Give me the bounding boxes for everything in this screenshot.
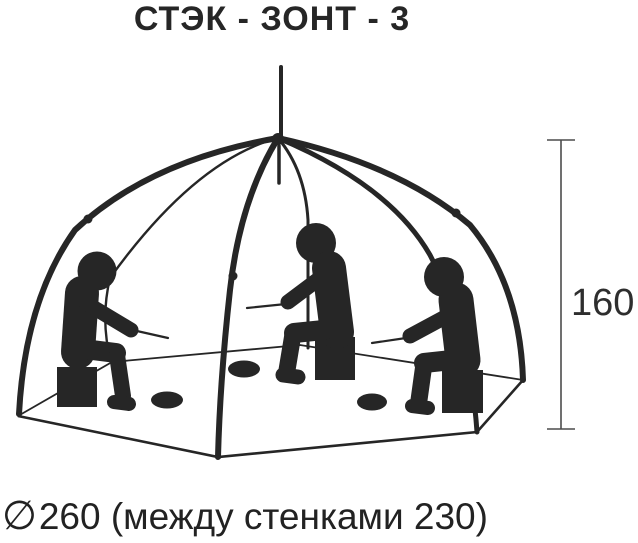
- seat-box-left: [57, 367, 97, 407]
- rib-joints: [84, 133, 461, 281]
- rib-joint-left: [84, 215, 93, 224]
- diagram-page: { "title": "СТЭК - ЗОНТ - 3", "diagram":…: [0, 0, 638, 543]
- diameter-caption-text: 260 (между стенками 230): [39, 496, 488, 537]
- tent-hub: [272, 133, 284, 145]
- tent-drawing: [0, 0, 638, 543]
- diameter-symbol: ∅: [2, 494, 37, 538]
- angler-right-shin: [419, 364, 424, 400]
- fishing-rod-middle: [247, 304, 286, 308]
- angler-right-torso: [456, 300, 463, 360]
- angler-left-shin: [117, 355, 123, 396]
- height-dimension-label: 160: [571, 282, 634, 325]
- angler-left-foot: [114, 402, 129, 404]
- rib-front: [218, 138, 278, 457]
- angler-right: [372, 257, 483, 413]
- angler-middle-foot: [283, 375, 298, 377]
- angler-middle-arm: [288, 278, 320, 302]
- fishing-rod-right: [372, 338, 406, 343]
- angler-middle: [247, 223, 355, 380]
- rib-joint-right: [452, 209, 461, 218]
- angler-right-foot: [412, 406, 428, 408]
- ice-hole-left: [151, 392, 183, 409]
- rib-joint-front: [229, 272, 238, 281]
- diameter-caption: ∅260 (между стенками 230): [2, 493, 488, 539]
- angler-left: [57, 252, 168, 408]
- ice-hole-center: [228, 361, 260, 378]
- ice-hole-right: [357, 394, 387, 411]
- angler-middle-shin: [287, 334, 293, 370]
